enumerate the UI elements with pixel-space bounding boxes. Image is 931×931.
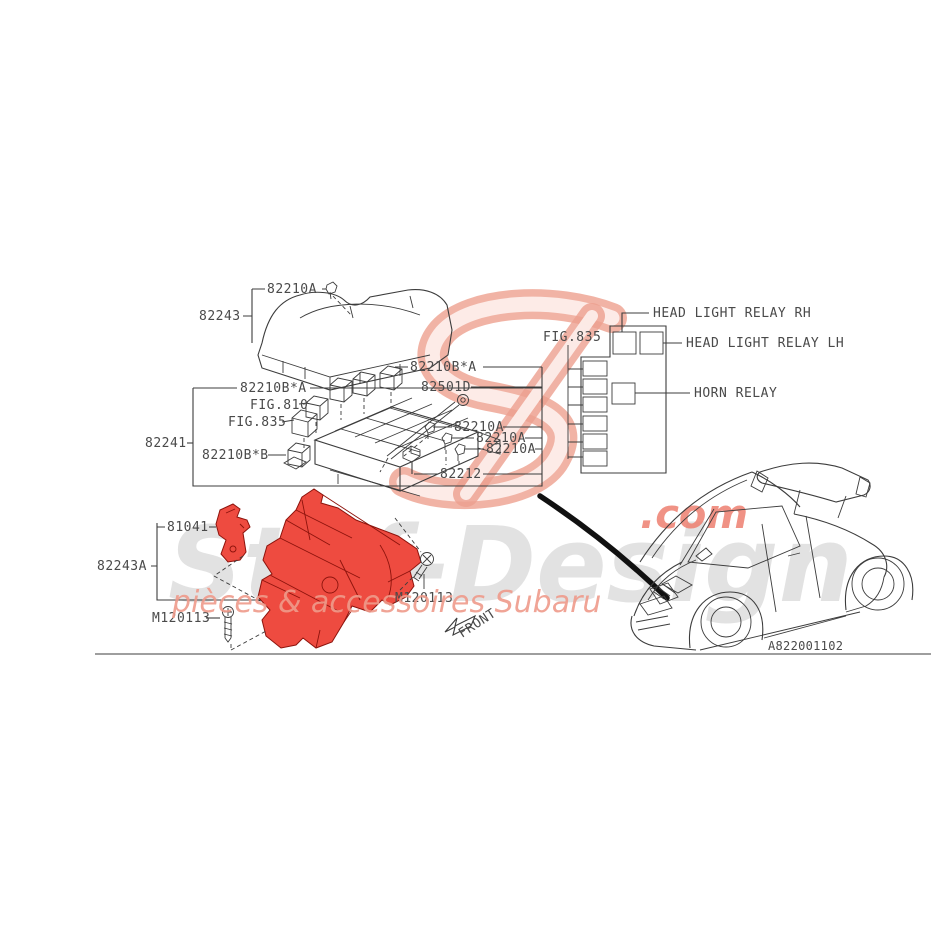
watermark-tld-text: .com	[640, 492, 748, 538]
parts-diagram-page: Stef-Design .com 82210A 82243 82241	[0, 0, 931, 931]
label-FIG835-right: FIG.835	[543, 330, 601, 345]
schematic-fuse-1	[583, 361, 607, 376]
schematic-fuse-3	[583, 397, 607, 412]
relay-cube-fig835	[292, 410, 317, 437]
watermark-tagline-text: pièces & accessoires Subaru	[171, 585, 601, 620]
relay-cube-82210BB	[284, 443, 310, 469]
relay-cube-1	[330, 378, 352, 402]
label-82501D: 82501D	[421, 380, 471, 395]
cover-bracket	[243, 289, 252, 343]
label-horn-relay: HORN RELAY	[694, 386, 777, 401]
schematic-fuse-6	[583, 451, 607, 466]
label-FIG835-left: FIG.835	[228, 415, 286, 430]
schematic-fuse-2	[583, 379, 607, 394]
diagram-canvas: Stef-Design .com 82210A 82243 82241	[0, 0, 931, 931]
label-81041: 81041	[167, 520, 209, 535]
schematic-headlight-rh-slot	[613, 332, 636, 354]
label-headlight-relay-rh: HEAD LIGHT RELAY RH	[653, 306, 811, 321]
cover-clip-icon	[326, 282, 337, 299]
screw-left-dashes	[231, 630, 268, 650]
schematic-headlight-lh-slot	[640, 332, 663, 354]
label-FIG810: FIG.810	[250, 398, 308, 413]
label-82243A: 82243A	[97, 559, 147, 574]
label-82210A-top: 82210A	[267, 282, 317, 297]
label-82210BA-right: 82210B*A	[410, 360, 477, 375]
drawing-code: A822001102	[768, 639, 843, 653]
label-82243: 82243	[199, 309, 241, 324]
label-82210A-3: 82210A	[486, 442, 536, 457]
schematic-horn-slot	[612, 383, 635, 404]
label-82212: 82212	[440, 467, 482, 482]
clip-icon-3	[455, 444, 465, 461]
label-headlight-relay-lh: HEAD LIGHT RELAY LH	[686, 336, 844, 351]
label-82210BA-left: 82210B*A	[240, 381, 307, 396]
label-82241: 82241	[145, 436, 187, 451]
schematic-fuse-5	[583, 434, 607, 449]
label-82210BB: 82210B*B	[202, 448, 269, 463]
schematic-fuse-4	[583, 416, 607, 431]
